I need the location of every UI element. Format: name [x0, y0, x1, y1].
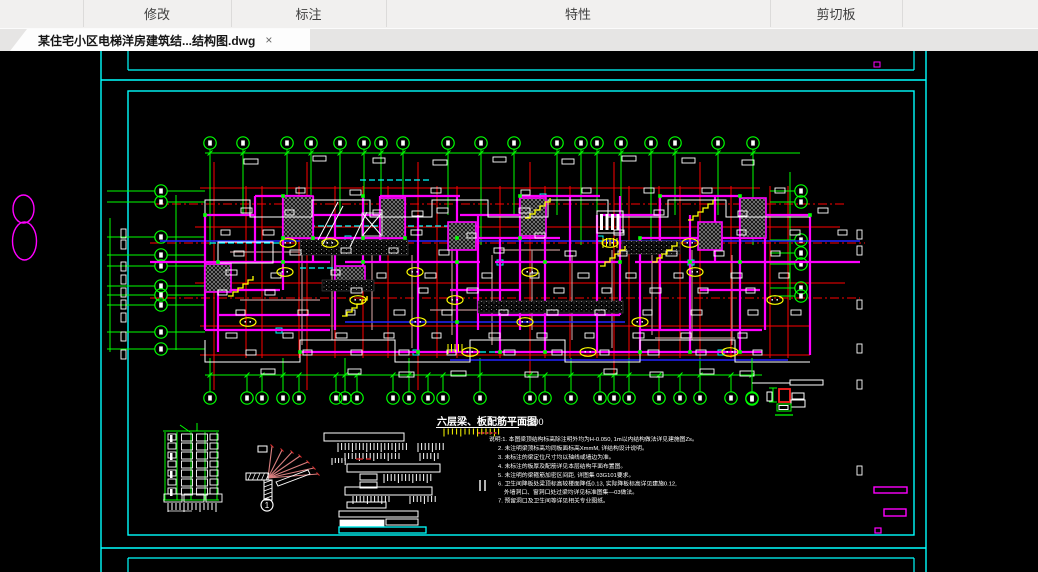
ribbon-section-properties[interactable]: 特性 [386, 0, 771, 27]
notes-line-7: 外墙洞口、窗洞口处过梁均详见标准图集—03做法。 [504, 488, 638, 496]
document-tab-bar: 某住宅小区电梯洋房建筑结...结构图.dwg × [0, 28, 1038, 51]
ribbon-section-annotate[interactable]: 标注 [231, 0, 387, 27]
close-icon[interactable]: × [265, 33, 272, 47]
notes-line-5: 5. 未注明的梁箍筋加密区间距, 详图集 03G101要求。 [498, 471, 634, 479]
ribbon-label-properties: 特性 [565, 4, 591, 23]
ribbon-label-clipboard: 剪切板 [816, 4, 855, 23]
file-tab-active[interactable]: 某住宅小区电梯洋房建筑结...结构图.dwg × [10, 29, 310, 51]
notes-line-8: 7. 预留洞口及卫生间等详见相关专业图纸。 [498, 497, 609, 505]
ribbon-section-empty-right [902, 0, 1038, 27]
notes-line-4: 4. 未标注的板厚及配筋详见本层结构平面布置图。 [498, 462, 626, 470]
ribbon-toolbar: 修改 标注 特性 剪切板 [0, 0, 1038, 28]
notes-line-2: 2. 未注明梁顶标高均同板面标高XmmM, 详结构设计说明。 [498, 444, 648, 452]
cad-drawing: 六层梁、板配筋平面图1:100说明:1. 本图梁顶结构标高除注明外均为H-0.0… [0, 50, 1038, 572]
ribbon-label-annotate: 标注 [295, 4, 321, 23]
ribbon-section-empty-left [0, 0, 84, 27]
callout-1-number: 1 [265, 501, 270, 510]
drawing-scale: 1:100 [521, 417, 544, 427]
ribbon-section-clipboard[interactable]: 剪切板 [770, 0, 903, 27]
notes-line-6: 6. 卫生间降板处梁顶标高较楼面降低0.13, 实际降板标高详见建施0.12, [498, 480, 677, 488]
drawing-canvas[interactable]: 六层梁、板配筋平面图1:100说明:1. 本图梁顶结构标高除注明外均为H-0.0… [0, 50, 1038, 572]
notes-line-3: 3. 未标注的梁定位尺寸均以轴线或墙边为准。 [498, 453, 615, 461]
notes-line-1: 说明:1. 本图梁顶结构标高除注明外均为H-0.050, 1m以内结构做法详见建… [489, 435, 698, 443]
ribbon-section-modify[interactable]: 修改 [83, 0, 232, 27]
file-tab-title: 某住宅小区电梯洋房建筑结...结构图.dwg [38, 32, 255, 49]
ribbon-label-modify: 修改 [144, 4, 170, 23]
